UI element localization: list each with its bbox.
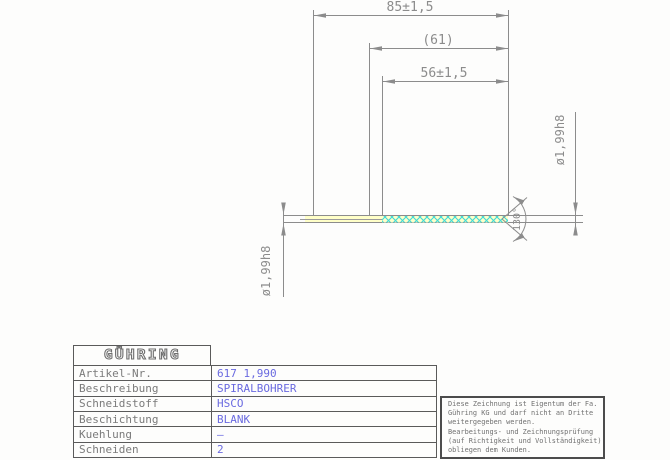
dim-diameter-left: ø1,99h8 — [259, 246, 273, 297]
guehring-logo: GÜHRING — [103, 348, 180, 363]
title-block-table: Artikel-Nr. 617 1,990 Beschreibung SPIRA… — [73, 365, 437, 458]
row-value: SPIRALBOHRER — [212, 381, 436, 395]
note-line: Gühring KG und darf nicht an Dritte — [448, 409, 601, 418]
row-label: Artikel-Nr. — [74, 366, 212, 380]
technical-drawing: 85±1,5 (61) 56±1,5 ø1,99h8 ø1,99h8 130° — [0, 0, 670, 340]
note-line: (auf Richtigkeit und Vollständigkeit) — [448, 437, 601, 446]
row-value: 2 — [212, 443, 436, 457]
dim-diameter-right: ø1,99h8 — [553, 115, 567, 166]
row-value: HSCO — [212, 397, 436, 411]
row-value: BLANK — [212, 412, 436, 426]
row-value: 617 1,990 — [212, 366, 436, 380]
row-label: Beschichtung — [74, 412, 212, 426]
note-line: weitergegeben werden. — [448, 418, 601, 427]
dim-flute-length: 56±1,5 — [421, 66, 468, 81]
table-row-beschichtung: Beschichtung BLANK — [74, 412, 436, 427]
extension-lines — [314, 10, 509, 215]
cad-drawing-page: { "drawing": { "dims": { "overall_length… — [0, 0, 670, 460]
row-label: Beschreibung — [74, 381, 212, 395]
table-row-artikel: Artikel-Nr. 617 1,990 — [74, 366, 436, 381]
row-label: Schneidstoff — [74, 397, 212, 411]
row-label: Schneiden — [74, 443, 212, 457]
note-line: obliegen dem Kunden. — [448, 446, 601, 455]
ownership-note-box: Diese Zeichnung ist Eigentum der Fa. Güh… — [440, 396, 605, 459]
dim-overall-length: 85±1,5 — [387, 0, 434, 15]
dim-ref-length: (61) — [422, 33, 453, 48]
dim-point-angle: 130° — [512, 207, 523, 231]
row-value: – — [212, 427, 436, 441]
note-line: Bearbeitungs- und Zeichnungsprüfung — [448, 428, 601, 437]
table-row-beschreibung: Beschreibung SPIRALBOHRER — [74, 381, 436, 396]
table-row-schneidstoff: Schneidstoff HSCO — [74, 397, 436, 412]
note-line: Diese Zeichnung ist Eigentum der Fa. — [448, 400, 601, 409]
drill-flutes — [382, 216, 508, 223]
logo-cell: GÜHRING — [73, 345, 211, 366]
row-label: Kuehlung — [74, 427, 212, 441]
table-row-kuehlung: Kuehlung – — [74, 427, 436, 442]
table-row-schneiden: Schneiden 2 — [74, 443, 436, 457]
